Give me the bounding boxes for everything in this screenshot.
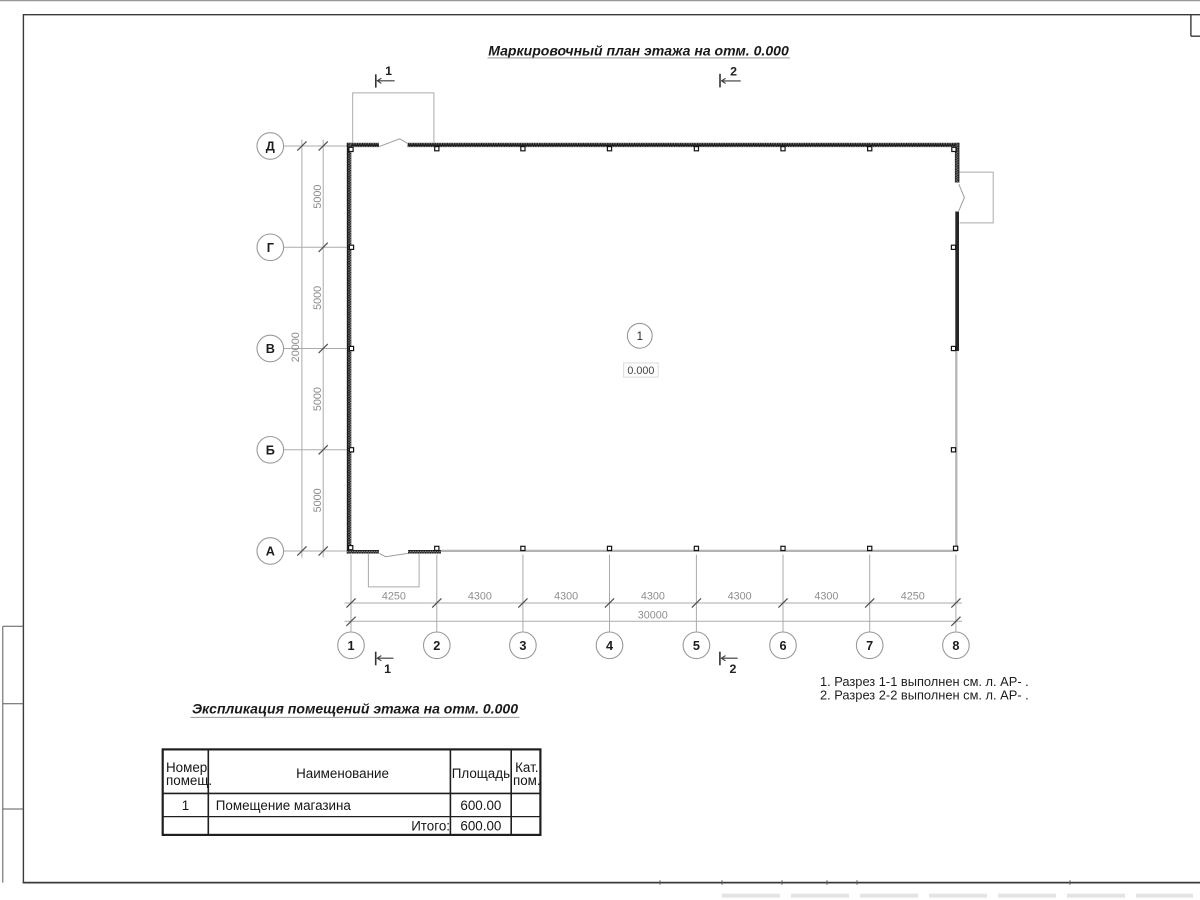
svg-text:1: 1 [347, 639, 354, 653]
svg-text:5000: 5000 [312, 286, 324, 310]
svg-text:8: 8 [952, 639, 959, 653]
svg-text:7: 7 [866, 639, 873, 653]
svg-text:Помещение магазина: Помещение магазина [216, 798, 352, 813]
svg-text:0.000: 0.000 [627, 365, 654, 377]
svg-text:Итого:: Итого: [411, 818, 450, 833]
svg-text:2: 2 [730, 662, 737, 676]
svg-text:Маркировочный план этажа на от: Маркировочный план этажа на отм. 0.000 [488, 42, 789, 58]
svg-text:5000: 5000 [312, 387, 324, 411]
svg-text:Д: Д [266, 140, 275, 154]
svg-text:2: 2 [730, 65, 737, 79]
svg-text:А: А [266, 545, 275, 559]
svg-text:Б: Б [266, 443, 275, 457]
svg-text:4300: 4300 [641, 591, 665, 603]
svg-text:600.00: 600.00 [460, 818, 501, 833]
svg-text:Наименование: Наименование [296, 766, 389, 781]
svg-text:Экспликация помещений этажа на: Экспликация помещений этажа на отм. 0.00… [192, 701, 518, 717]
svg-text:1: 1 [637, 331, 643, 343]
svg-text:5000: 5000 [312, 488, 324, 512]
svg-text:4300: 4300 [468, 591, 492, 603]
svg-text:4300: 4300 [728, 591, 752, 603]
svg-text:1: 1 [384, 662, 391, 676]
svg-text:6: 6 [779, 639, 786, 653]
svg-text:3: 3 [519, 639, 526, 653]
svg-text:1: 1 [385, 64, 392, 78]
svg-text:1: 1 [182, 798, 189, 813]
svg-text:600.00: 600.00 [460, 798, 501, 813]
svg-text:В: В [266, 342, 275, 356]
svg-text:5000: 5000 [312, 185, 324, 209]
svg-text:пом.: пом. [513, 773, 541, 788]
svg-text:4: 4 [606, 639, 613, 653]
svg-text:2. Разрез 2-2 выполнен см. л.: 2. Разрез 2-2 выполнен см. л. АР- . [820, 688, 1029, 703]
svg-text:4300: 4300 [814, 591, 838, 603]
svg-text:5: 5 [693, 639, 700, 653]
svg-text:4250: 4250 [382, 591, 406, 603]
svg-text:помещ.: помещ. [166, 773, 212, 788]
svg-text:Площадь: Площадь [452, 766, 510, 781]
svg-text:4300: 4300 [554, 591, 578, 603]
svg-text:2: 2 [433, 639, 440, 653]
svg-text:30000: 30000 [638, 610, 668, 622]
svg-text:Г: Г [267, 241, 274, 255]
svg-text:4250: 4250 [901, 591, 925, 603]
svg-text:20000: 20000 [290, 332, 302, 362]
